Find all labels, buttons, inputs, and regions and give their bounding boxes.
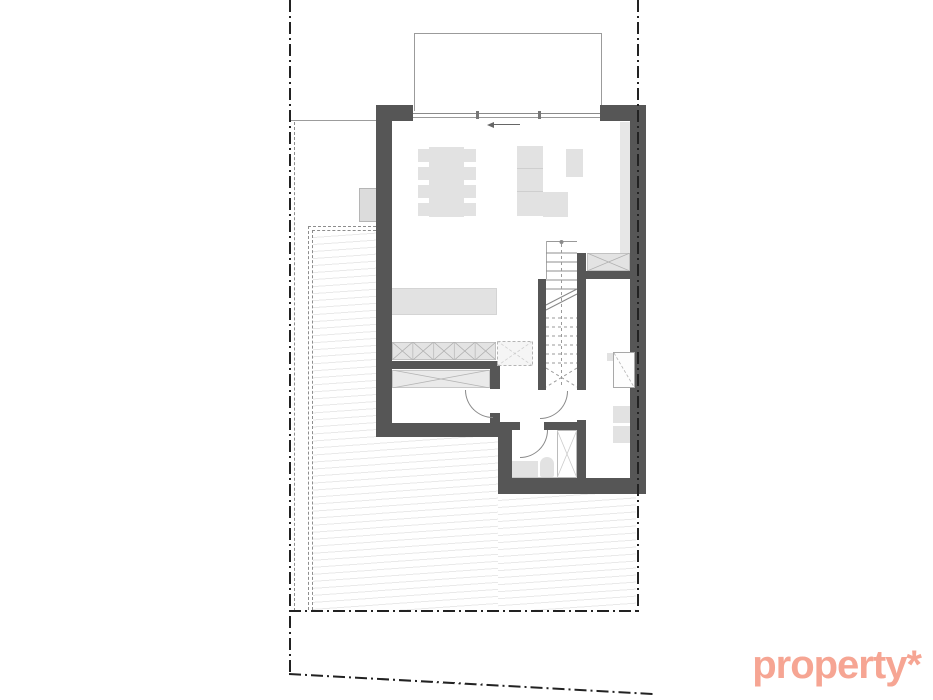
wall-office-north — [586, 271, 630, 279]
window-glazing-line-2 — [413, 117, 600, 118]
utility-storage-cabinet — [392, 370, 490, 388]
terrace-border-top-inner — [312, 230, 376, 231]
entrance-arrow-head — [487, 122, 494, 128]
terrace-border-top-outer — [308, 226, 376, 227]
office-wardrobe — [587, 253, 630, 271]
wall-bathroom-north-right — [544, 422, 577, 430]
terrace-border-left-inner — [312, 230, 313, 610]
kitchen-island — [391, 288, 497, 315]
dining-chair — [464, 185, 476, 198]
wall-wardrobe-south — [390, 361, 496, 369]
watermark: property* — [752, 643, 921, 688]
wall-office-west-lower — [577, 420, 586, 478]
boundary-line-left — [289, 0, 291, 674]
toilet — [540, 457, 554, 477]
wall-stair-west — [538, 279, 546, 390]
terrace-hatch-south-right — [498, 494, 636, 610]
floor-plan-canvas: property* — [0, 0, 933, 700]
tall-cabinet-dashed — [497, 341, 533, 366]
office-desk — [613, 352, 635, 388]
wall-west — [376, 105, 392, 437]
window-mullion-2 — [538, 111, 541, 119]
wall-bathroom-north-left — [498, 422, 520, 430]
boundary-line-diagonal — [289, 673, 655, 695]
dining-chair — [464, 203, 476, 216]
staircase — [546, 240, 577, 390]
sofa-corner-section — [543, 192, 568, 217]
dining-chair — [418, 167, 429, 180]
fence-line — [290, 120, 377, 121]
utility-room-door — [465, 390, 493, 418]
dining-chair — [418, 185, 429, 198]
dining-table — [429, 147, 464, 217]
window-glazing-line-1 — [413, 113, 600, 114]
dining-chair — [464, 167, 476, 180]
built-in-wardrobe-row — [392, 342, 496, 360]
bathroom-cabinet — [512, 461, 538, 477]
sofa-long-section — [517, 146, 543, 216]
boundary-line-bottom — [289, 610, 638, 612]
wall-south-lower-section — [498, 478, 646, 494]
wall-utility-south — [376, 423, 500, 437]
window-mullion-1 — [476, 111, 479, 119]
terrace-hatch-west — [313, 231, 376, 610]
bathroom-door — [520, 430, 548, 458]
dining-chair — [418, 203, 429, 216]
wall-bathroom-west — [498, 423, 512, 494]
hall-door — [540, 391, 568, 419]
boundary-inner-dashed — [294, 122, 295, 611]
terrace-hatch-south-left — [376, 437, 498, 610]
entrance-arrow-line — [493, 124, 520, 125]
terrace-border-left-outer — [308, 226, 309, 610]
sideboard-east-wall — [620, 122, 630, 253]
dining-chair — [464, 149, 476, 162]
armchair — [566, 149, 583, 177]
dining-chair — [418, 149, 429, 162]
shower — [557, 430, 577, 478]
canopy-outline — [414, 33, 602, 114]
boundary-line-right — [637, 0, 639, 612]
wall-stair-east — [577, 253, 586, 390]
